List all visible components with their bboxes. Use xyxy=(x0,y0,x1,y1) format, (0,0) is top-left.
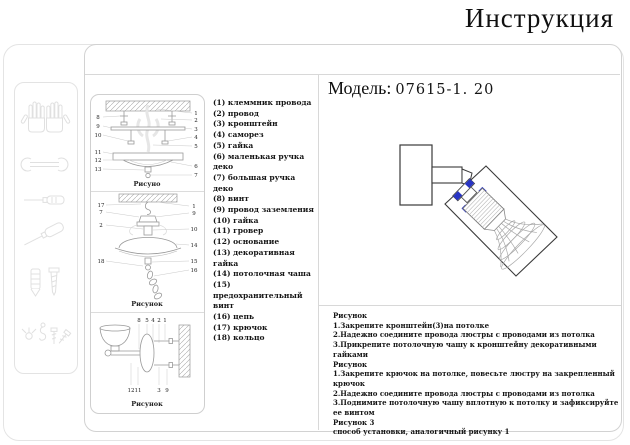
figure-3-caption: Рисунок xyxy=(131,400,163,408)
part-item: (10) гайка xyxy=(213,216,316,227)
instructions-divider xyxy=(319,305,621,306)
part-item: (3) кронштейн xyxy=(213,119,316,130)
hardware-parts-icon xyxy=(22,323,71,345)
svg-text:17: 17 xyxy=(98,203,105,209)
instruction-line: Рисунок 3 xyxy=(333,418,625,428)
figure-1-caption: Рисуно xyxy=(134,180,162,188)
svg-text:1: 1 xyxy=(163,318,167,324)
svg-text:10: 10 xyxy=(95,133,102,139)
svg-text:4: 4 xyxy=(151,318,155,324)
svg-text:5: 5 xyxy=(194,144,198,150)
dowel-and-screw-icon xyxy=(31,268,59,296)
instruction-line: Рисунок xyxy=(333,311,625,321)
svg-text:9: 9 xyxy=(165,388,169,394)
figure-2: 17 7 2 18 1 9 10 14 15 16 Рисунок xyxy=(91,191,204,312)
svg-text:12: 12 xyxy=(95,158,102,164)
part-item: (6) маленькая ручка деко xyxy=(213,152,316,173)
svg-text:15: 15 xyxy=(191,259,198,265)
svg-text:1: 1 xyxy=(194,111,198,117)
instruction-line: Рисунок xyxy=(333,360,625,370)
part-item: (16) цепь xyxy=(213,312,316,323)
mount-base xyxy=(400,145,432,205)
parts-list: (1) клеммник провода (2) провод (3) крон… xyxy=(213,98,316,344)
part-item: (9) провод заземления xyxy=(213,205,316,216)
svg-text:11: 11 xyxy=(95,150,102,156)
part-item: (14) потолочная чаша xyxy=(213,269,316,280)
svg-text:5: 5 xyxy=(145,318,149,324)
instruction-line: 1.Закрепите кронштейн(3)на потолке xyxy=(333,321,625,331)
svg-text:7: 7 xyxy=(99,210,103,216)
svg-text:11: 11 xyxy=(135,388,142,394)
part-item: (12) основание xyxy=(213,237,316,248)
part-item: (5) гайка xyxy=(213,141,316,152)
part-item: (13) декоративная гайка xyxy=(213,248,316,269)
part-item: (11) гровер xyxy=(213,226,316,237)
part-item: (7) большая ручка деко xyxy=(213,173,316,194)
svg-text:12: 12 xyxy=(128,388,135,394)
instruction-line: 3.Прикрепите потолочную чашу к кронштейн… xyxy=(333,340,625,359)
instruction-line: 2.Надежно соедините провода люстры с про… xyxy=(333,330,625,340)
instruction-line: способ установки, аналогичный рисунку 1 xyxy=(333,427,625,437)
column-divider xyxy=(318,74,319,430)
header-divider xyxy=(85,74,620,75)
svg-text:1: 1 xyxy=(192,204,196,210)
product-drawing xyxy=(382,112,597,302)
part-item: (18) кольцо xyxy=(213,333,316,344)
part-item: (2) провод xyxy=(213,109,316,120)
svg-text:8: 8 xyxy=(137,318,141,324)
model-number: 07615-1. 20 xyxy=(395,82,494,98)
assembly-instructions: Рисунок 1.Закрепите кронштейн(3)на потол… xyxy=(333,311,625,437)
figure-1: 8 9 10 11 12 13 1 2 3 4 5 6 7 Рисуно xyxy=(91,95,204,191)
figures-column: 8 9 10 11 12 13 1 2 3 4 5 6 7 Рисуно xyxy=(90,94,205,414)
part-item: (8) винт xyxy=(213,194,316,205)
svg-text:2: 2 xyxy=(157,318,161,324)
svg-text:10: 10 xyxy=(191,227,198,233)
svg-text:16: 16 xyxy=(191,268,198,274)
model-label: Модель: xyxy=(328,78,391,98)
long-screwdriver-icon xyxy=(22,221,64,249)
part-item: (1) клеммник провода xyxy=(213,98,316,109)
svg-text:18: 18 xyxy=(98,259,105,265)
figure-3: 8 5 4 2 1 12 11 3 9 Рисунок xyxy=(91,312,204,413)
svg-text:4: 4 xyxy=(194,135,198,141)
part-item: (4) саморез xyxy=(213,130,316,141)
figure-2-caption: Рисунок xyxy=(131,300,163,308)
svg-text:2: 2 xyxy=(99,223,103,229)
svg-text:3: 3 xyxy=(157,388,161,394)
gloves-icon xyxy=(21,102,71,132)
svg-text:14: 14 xyxy=(191,243,198,249)
svg-text:9: 9 xyxy=(192,211,196,217)
svg-text:3: 3 xyxy=(194,127,198,133)
instruction-line: 2.Надежно соедините провода люстры с про… xyxy=(333,389,625,399)
svg-text:7: 7 xyxy=(194,173,198,179)
svg-text:8: 8 xyxy=(96,115,100,121)
part-item: (17) крючок xyxy=(213,323,316,334)
svg-text:2: 2 xyxy=(194,118,198,124)
model-line: Модель: 07615-1. 20 xyxy=(328,78,494,99)
screwdriver-icon xyxy=(24,196,64,204)
arm xyxy=(432,167,462,183)
svg-text:13: 13 xyxy=(95,167,102,173)
wrench-icon xyxy=(21,158,68,171)
part-item: (15) предохранительный винт xyxy=(213,280,316,312)
svg-text:6: 6 xyxy=(194,164,198,170)
instruction-line: 3.Поднимите потолочную чашу вплотную к п… xyxy=(333,398,625,417)
page-title: Инструкция xyxy=(465,3,614,34)
svg-text:9: 9 xyxy=(96,124,100,130)
instruction-line: 1.Закрепите крючок на потолке, повесьте … xyxy=(333,369,625,388)
tools-strip xyxy=(14,82,78,374)
